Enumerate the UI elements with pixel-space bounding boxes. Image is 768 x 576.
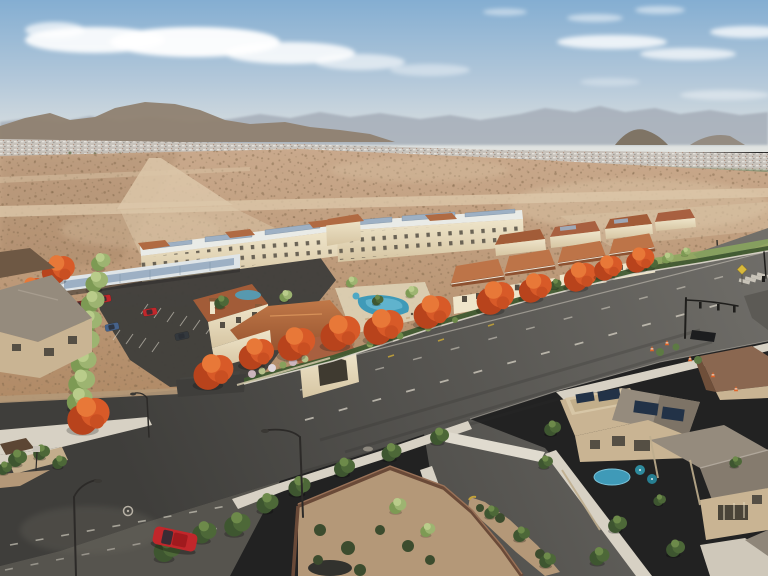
house-corner-roof [696,346,768,400]
spa [353,293,360,300]
backyard-pool [594,465,657,485]
chimney [210,300,215,314]
house-gray [650,425,768,540]
aerial-photo: Aerial composite photo: rendered apartme… [0,0,768,576]
second-pool [235,290,261,300]
